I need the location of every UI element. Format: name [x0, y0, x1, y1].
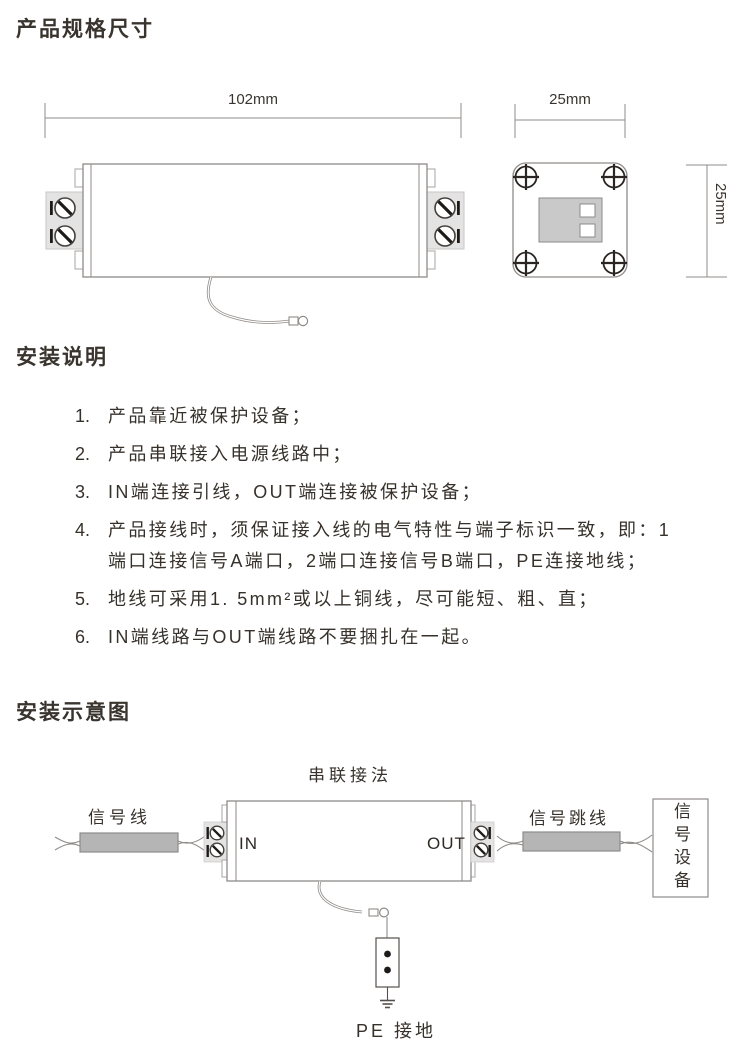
step-number: 3. — [75, 477, 95, 508]
width-dimension-line — [45, 103, 461, 138]
install-step: 2. 产品串联接入电源线路中； — [75, 439, 689, 470]
step-number: 5. — [75, 584, 95, 615]
device-side-view — [46, 164, 464, 326]
ground-pigtail-wire — [208, 277, 307, 326]
install-step: 1. 产品靠近被保护设备； — [75, 401, 689, 432]
depth-dimension-label: 25mm — [515, 91, 625, 108]
step-text: IN端连接引线，OUT端连接被保护设备； — [108, 477, 482, 508]
install-section-title: 安装说明 — [16, 341, 108, 371]
step-text: IN端线路与OUT端线路不要捆扎在一起。 — [108, 622, 482, 653]
step-text: 产品串联接入电源线路中； — [108, 439, 353, 470]
step-text: 产品靠近被保护设备； — [108, 401, 312, 432]
install-step: 4. 产品接线时，须保证接入线的电气特性与端子标识一致，即：1端口连接信号A端口… — [75, 515, 689, 577]
out-port-label: OUT — [427, 834, 466, 854]
depth-dimension-line — [515, 104, 625, 138]
diagram-ground-wire — [319, 881, 388, 938]
ground-terminal-box — [376, 938, 399, 1000]
device-end-view — [513, 163, 627, 277]
spec-section-title: 产品规格尺寸 — [16, 13, 154, 43]
connector-block — [539, 198, 602, 242]
device-body — [83, 164, 427, 277]
step-number: 6. — [75, 622, 95, 653]
step-number: 2. — [75, 439, 95, 470]
width-dimension-label: 102mm — [45, 91, 461, 108]
diagram-section-title: 安装示意图 — [16, 696, 131, 726]
step-text: 地线可采用1. 5mm²或以上铜线，尽可能短、粗、直； — [108, 584, 599, 615]
install-step: 6. IN端线路与OUT端线路不要捆扎在一起。 — [75, 622, 689, 653]
install-step: 5. 地线可采用1. 5mm²或以上铜线，尽可能短、粗、直； — [75, 584, 689, 615]
installation-diagram-art — [55, 799, 708, 1008]
manual-page: 产品规格尺寸 102mm 25mm 25mm 安装说明 1. 产品靠近被保护设备… — [0, 0, 750, 1063]
signal-line-label: 信号线 — [88, 803, 151, 828]
step-number: 4. — [75, 515, 95, 577]
series-connection-caption: 串联接法 — [260, 761, 440, 786]
install-steps-list: 1. 产品靠近被保护设备； 2. 产品串联接入电源线路中； 3. IN端连接引线… — [75, 401, 689, 660]
jumper-cable — [523, 832, 620, 851]
in-port-label: IN — [239, 834, 258, 854]
step-text: 产品接线时，须保证接入线的电气特性与端子标识一致，即：1端口连接信号A端口，2端… — [108, 515, 689, 577]
height-dimension-label: 25mm — [712, 183, 729, 225]
earth-symbol — [380, 1001, 395, 1008]
diagram-right-terminal — [471, 822, 494, 862]
step-number: 1. — [75, 401, 95, 432]
pe-ground-label: PE 接地 — [356, 1017, 436, 1043]
diagram-left-terminal — [204, 822, 227, 862]
signal-jumper-label: 信号跳线 — [529, 804, 609, 829]
signal-equipment-label: 信号设备 — [653, 799, 708, 897]
signal-cable — [80, 833, 178, 852]
install-step: 3. IN端连接引线，OUT端连接被保护设备； — [75, 477, 689, 508]
ring-terminal — [298, 316, 307, 325]
